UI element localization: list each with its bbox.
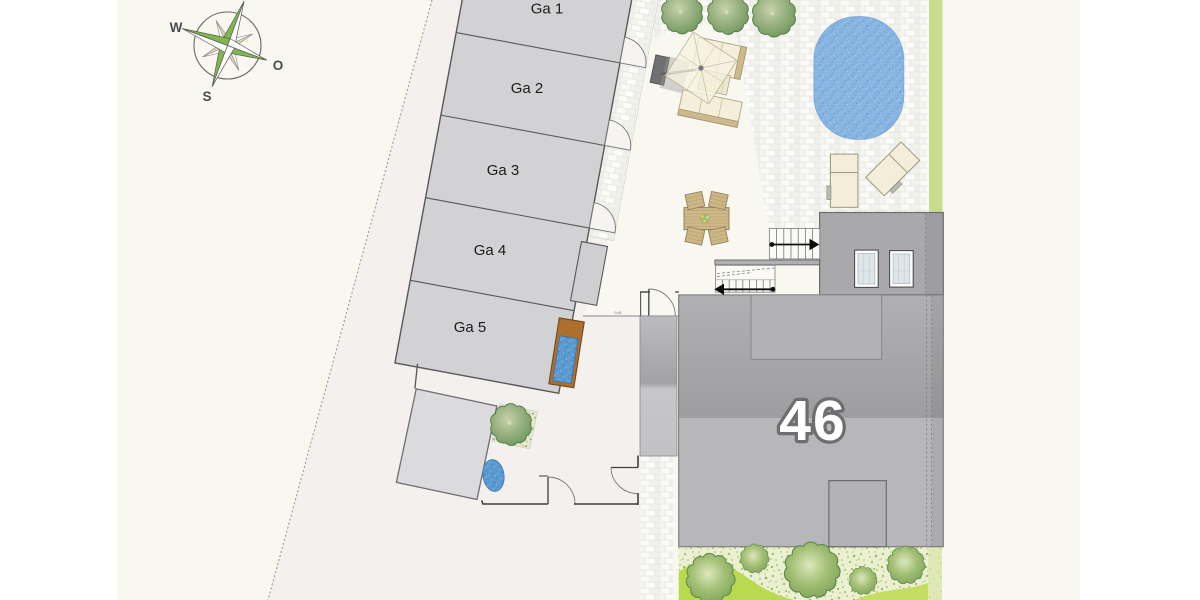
- svg-text:Ga 5: Ga 5: [454, 319, 487, 336]
- svg-text:Ga 4: Ga 4: [474, 242, 507, 259]
- svg-text:S: S: [202, 89, 211, 104]
- svg-text:Ga 3: Ga 3: [487, 162, 520, 179]
- svg-text:SuB: SuB: [614, 310, 622, 315]
- svg-text:W: W: [170, 20, 183, 35]
- svg-text:Ga 2: Ga 2: [511, 80, 544, 97]
- svg-text:46: 46: [779, 389, 846, 453]
- svg-text:Ga 1: Ga 1: [531, 1, 564, 18]
- svg-text:O: O: [273, 58, 284, 73]
